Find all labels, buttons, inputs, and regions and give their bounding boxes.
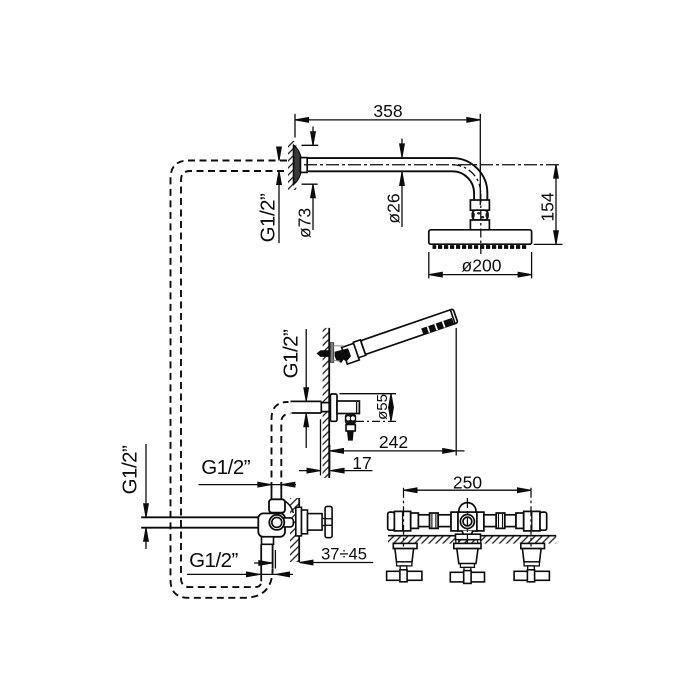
svg-text:ø73: ø73 <box>295 208 315 238</box>
svg-text:37÷45: 37÷45 <box>321 546 367 564</box>
svg-text:G1/2”: G1/2” <box>280 329 303 378</box>
svg-text:ø55: ø55 <box>374 394 391 420</box>
svg-text:G1/2”: G1/2” <box>257 193 280 242</box>
svg-text:G1/2”: G1/2” <box>201 456 250 479</box>
svg-text:154: 154 <box>538 192 558 221</box>
svg-text:242: 242 <box>379 432 408 452</box>
svg-text:ø200: ø200 <box>462 256 502 276</box>
svg-text:358: 358 <box>373 101 402 121</box>
svg-text:G1/2”: G1/2” <box>189 549 238 572</box>
svg-text:ø26: ø26 <box>384 193 404 223</box>
svg-text:17: 17 <box>352 453 371 473</box>
svg-text:G1/2”: G1/2” <box>119 445 142 494</box>
svg-text:250: 250 <box>453 473 482 493</box>
